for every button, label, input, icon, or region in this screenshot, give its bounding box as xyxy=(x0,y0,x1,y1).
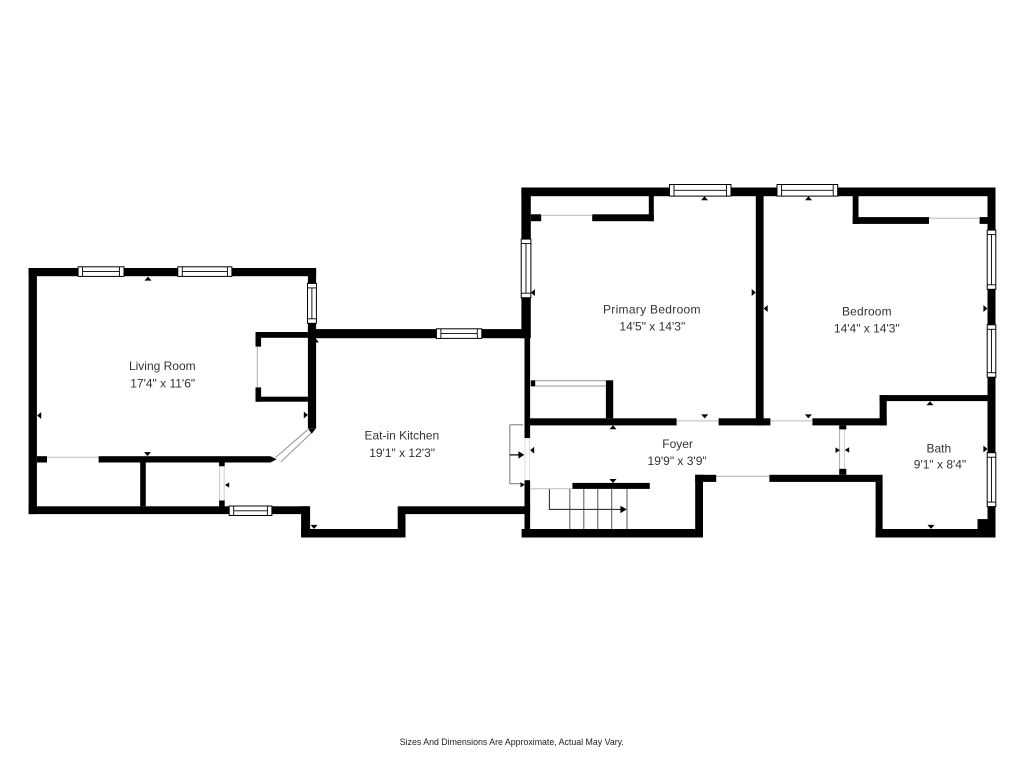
svg-text:Eat-in Kitchen: Eat-in Kitchen xyxy=(364,429,439,443)
svg-text:Primary Bedroom: Primary Bedroom xyxy=(603,303,701,317)
svg-text:Bath: Bath xyxy=(926,441,951,455)
svg-text:Foyer: Foyer xyxy=(662,437,693,451)
svg-text:17'4" x 11'6": 17'4" x 11'6" xyxy=(130,377,195,391)
svg-text:14'5" x 14'3": 14'5" x 14'3" xyxy=(619,319,685,333)
svg-text:19'1" x 12'3": 19'1" x 12'3" xyxy=(369,446,435,460)
svg-text:14'4" x 14'3": 14'4" x 14'3" xyxy=(834,322,900,336)
svg-text:Living Room: Living Room xyxy=(129,359,196,373)
svg-text:Sizes And Dimensions Are Appro: Sizes And Dimensions Are Approximate, Ac… xyxy=(400,737,624,747)
svg-text:19'9" x 3'9": 19'9" x 3'9" xyxy=(648,454,707,468)
svg-text:9'1" x 8'4": 9'1" x 8'4" xyxy=(914,457,966,471)
svg-text:Bedroom: Bedroom xyxy=(842,304,892,318)
